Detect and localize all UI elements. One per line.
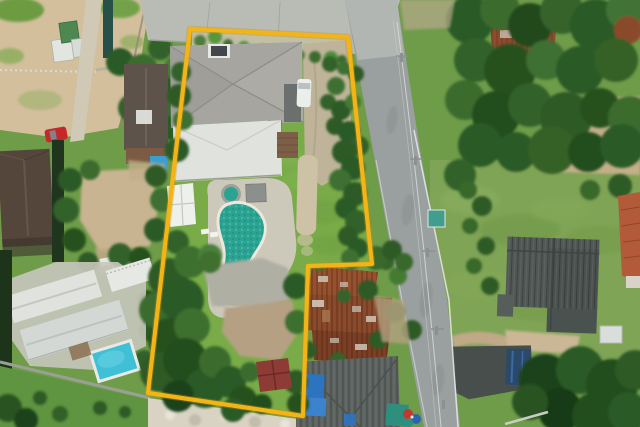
- villa-complex: [6, 258, 156, 382]
- gravel-east-of-junction: [400, 0, 455, 30]
- left-edge-house: [0, 149, 55, 258]
- west-neighbor-house: [124, 64, 168, 170]
- spa-tub: [223, 186, 240, 203]
- white-pergola: [136, 110, 152, 124]
- shade-pad: [246, 184, 267, 203]
- wood-deck: [277, 132, 298, 158]
- white-van: [297, 79, 312, 107]
- white-shed: [600, 326, 622, 343]
- solar-panel: [208, 44, 230, 58]
- teal-container: [103, 0, 113, 58]
- tree-canopy-east-top: [444, 0, 640, 191]
- red-roof-shed: [256, 358, 292, 392]
- utility-box: [428, 210, 445, 227]
- tree-canopy-east-bottom: [512, 346, 640, 427]
- neighborhood-east: [430, 0, 640, 427]
- white-wing-roof: [173, 120, 282, 182]
- aerial-photo: Top-down aerial photo of a land plot for…: [0, 0, 640, 427]
